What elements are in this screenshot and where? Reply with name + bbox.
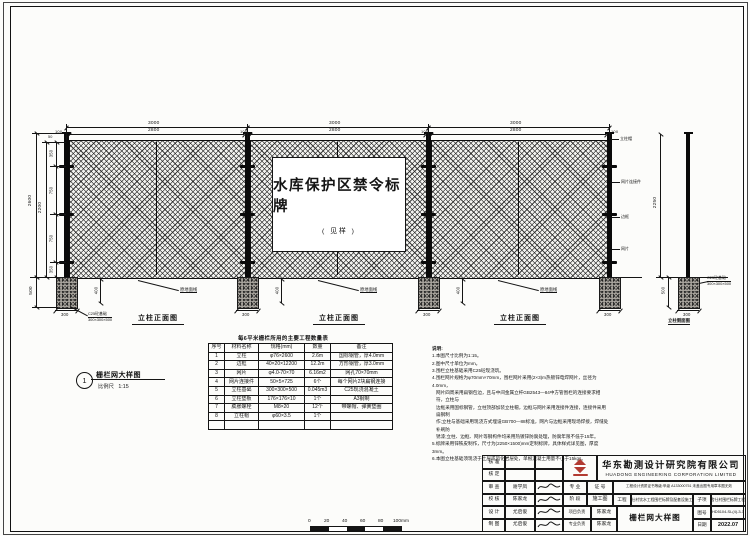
mesh-divider: [156, 142, 157, 275]
tb-date-value: 2022.07: [710, 518, 746, 533]
leader-line: [612, 249, 620, 250]
dim-label: 2800: [329, 128, 340, 133]
note-line: 1.本图尺寸比例为1:15。: [432, 352, 609, 359]
foundation: [56, 277, 78, 309]
scalebar-label: 80: [378, 519, 383, 524]
table-row: 3网片φ4.0-70×706.16m2网孔70×70mm: [209, 369, 393, 378]
company-block: 华东勘测设计研究院有限公司 HUADONG ENGINEERING CORPOR…: [596, 455, 746, 482]
table-header-row: 序号 材料名称 规格(mm) 数量 备注: [209, 344, 393, 353]
dim-label: 300: [61, 312, 69, 317]
note-line: 4.围栏网片规格为φ70mm×70mm，围栏网片采用(2×3)m热镀锌电焊网片，…: [432, 374, 609, 389]
scalebar-label: 40: [342, 519, 347, 524]
view-label-front-1: 立柱正面图: [132, 313, 184, 325]
dim-line: [462, 279, 463, 303]
dim-label: 2250: [653, 197, 658, 208]
dim-label: 300: [683, 312, 691, 317]
post: [245, 134, 250, 298]
company-logo-icon: [562, 455, 598, 482]
table-row: 6立柱垫板176×176×101个A3钢制: [209, 395, 393, 404]
dim-label: 3000: [510, 121, 521, 126]
callout-mesh: 网片: [621, 246, 629, 251]
note-line: 锈漆;立柱、边框、网片等钢构件均采用热镀锌防腐处理，防腐年限不低于15年。: [432, 433, 609, 440]
dim-label: 3000: [148, 121, 159, 126]
foundation: [599, 277, 621, 309]
view-label-side: 立柱侧面图: [668, 318, 690, 325]
dim-label: 750: [48, 187, 53, 195]
dim-label: 750: [48, 235, 53, 243]
note-line: 3.围栏立柱基础采用C25砼现浇筑。: [432, 367, 609, 374]
dim-label: 300: [423, 312, 431, 317]
dim-line: [46, 142, 47, 277]
callout-ground: 原地面线: [180, 287, 197, 293]
dim-label: 3000: [329, 121, 340, 126]
connector-flange: [602, 165, 617, 169]
notes-block: 说明: 1.本图尺寸比例为1:15。 2.图中尺寸单位为mm。 3.围栏立柱基础…: [432, 345, 609, 463]
connector-flange: [240, 261, 255, 265]
table-row: 8立柱帽φ60×3.51个: [209, 412, 393, 421]
callout-ground: 原地面线: [540, 287, 557, 293]
post: [426, 134, 431, 298]
drawing-sheet: 水库保护区禁令标牌 ( 见样 ) 3000 3000 3000 2800 280…: [0, 0, 750, 536]
side-post: [686, 134, 690, 298]
dim-label: 2600: [28, 195, 33, 206]
dim-line: [431, 134, 606, 135]
dim-line: [69, 134, 244, 135]
dim-line: [56, 142, 57, 277]
callout-foundation: C25砼基础 300×300×500: [88, 312, 112, 323]
post: [607, 134, 612, 298]
side-foundation: [678, 277, 700, 309]
leader-line: [612, 182, 620, 183]
view-label-front-3: 立柱正面图: [494, 313, 546, 325]
note-line: 作;立柱与基础采用现浇方式埋设GB700—88标准，网片与边框采用现场焊接，焊缝…: [432, 418, 609, 433]
tb-label-lead: 专业负责: [562, 518, 592, 533]
foundation: [237, 277, 259, 309]
connector-flange: [421, 213, 436, 217]
mesh-panel-1: [69, 140, 246, 279]
materials-table-title: 每6平米栅栏所用的主要工程数量表: [238, 334, 328, 342]
company-name-en: HUADONG ENGINEERING CORPORATION LIMITED: [606, 472, 737, 477]
callout-connector: 网片连接件: [621, 179, 641, 184]
signature-icon: [534, 518, 564, 533]
tb-drawing-title: 栅栏网大样图: [616, 505, 694, 532]
post: [64, 134, 69, 298]
note-line: 2.图中尺寸单位为mm。: [432, 360, 609, 367]
callout-ground: 原地面线: [360, 287, 377, 293]
note-line: 网片四周采用扁钢包边，且与中间金属立杆GB2543—84中方管围栏的连接要求相符…: [432, 389, 609, 404]
connector-flange: [240, 165, 255, 169]
table-row: 1立柱φ76×26002.6m国标钢管，厚4.0mm: [209, 352, 393, 361]
dim-line: [36, 277, 37, 307]
materials-table: 序号 材料名称 规格(mm) 数量 备注 1立柱φ76×26002.6m国标钢管…: [208, 343, 393, 430]
detail-scale: 比例尺 1:15: [98, 382, 129, 390]
dim-label: 100: [611, 129, 618, 134]
tb-label-draft: 制 图: [482, 518, 506, 533]
dim-label: 50: [48, 135, 53, 139]
dim-label: 350: [48, 266, 53, 274]
tb-name-draft: 尤启俊: [504, 518, 536, 533]
leader-line: [611, 139, 619, 140]
view-label-front-2: 立柱正面图: [313, 313, 365, 325]
dim-label: 2800: [148, 128, 159, 133]
dim-label: 400: [93, 287, 98, 295]
dim-label: 300: [604, 312, 612, 317]
scalebar-label: 0: [308, 519, 311, 524]
sign-text: 水库保护区禁令标牌: [273, 174, 405, 216]
dim-label: 500: [660, 287, 665, 295]
dim-line: [36, 133, 37, 277]
table-row: 4网片连接件50×5×7256个每个网片2块扁钢连接: [209, 378, 393, 387]
dim-label: 100: [240, 129, 247, 134]
notes-title: 说明:: [432, 345, 609, 352]
dim-label: 350: [48, 150, 53, 158]
note-line: 边框采用国标钢管，立柱顶部加装立柱帽，边框与网片采用连接件连接，连接件采用扁钢制: [432, 404, 609, 419]
dim-line: [250, 134, 425, 135]
dim-label: 100: [421, 129, 428, 134]
connector-flange: [240, 213, 255, 217]
scalebar-label: 20: [324, 519, 329, 524]
connector-flange: [602, 213, 617, 217]
scalebar-label: 100mm: [393, 519, 409, 524]
table-row: 2边框40×20×1220012.2m方形钢管，厚3.0mm: [209, 361, 393, 370]
detail-bubble: 1: [76, 372, 93, 389]
callout-foundation: C25砼基础 300×300×500: [707, 276, 731, 287]
sign-board: 水库保护区禁令标牌 ( 见样 ): [272, 157, 406, 252]
table-row: 5立柱基础300×300×5000.045m3C25现浇混凝土: [209, 386, 393, 395]
dim-label: 2200: [38, 202, 43, 213]
mesh-panel-3: [431, 140, 608, 279]
foundation: [418, 277, 440, 309]
table-row: [209, 421, 393, 430]
dim-line: [660, 134, 661, 277]
dim-line: [668, 277, 669, 307]
detail-number: 1: [82, 376, 86, 385]
dim-label: 300: [242, 312, 250, 317]
detail-title: 栅栏网大样图: [96, 370, 141, 380]
side-post-cap: [684, 132, 693, 134]
dim-line: [281, 279, 282, 303]
tb-lead-name: 陈家龙: [590, 518, 618, 533]
dim-label: 2800: [510, 128, 521, 133]
table-row: 7膨胀螺栓M8×2012个带螺帽、弹簧垫圈: [209, 404, 393, 413]
sign-subtext: ( 见样 ): [322, 225, 356, 235]
note-line: 5.标牌采用锌铁皮制作，尺寸为(2250×1500)mm定制标牌，具体样式详见图…: [432, 440, 609, 455]
leader-line: [612, 217, 620, 218]
connector-flange: [421, 261, 436, 265]
scale-bar: [310, 526, 402, 532]
dim-label: 400: [455, 287, 460, 295]
dim-label: 500: [29, 286, 34, 295]
callout-cap: 立柱帽: [620, 136, 632, 141]
mesh-divider: [518, 142, 519, 275]
dim-label: 400: [274, 287, 279, 295]
dim-line: [100, 279, 101, 303]
callout-frame: 边框: [621, 214, 629, 219]
connector-flange: [602, 261, 617, 265]
connector-flange: [421, 165, 436, 169]
tb-label-date: 日期: [692, 518, 712, 533]
scalebar-label: 60: [360, 519, 365, 524]
company-name-cn: 华东勘测设计研究院有限公司: [602, 460, 740, 470]
